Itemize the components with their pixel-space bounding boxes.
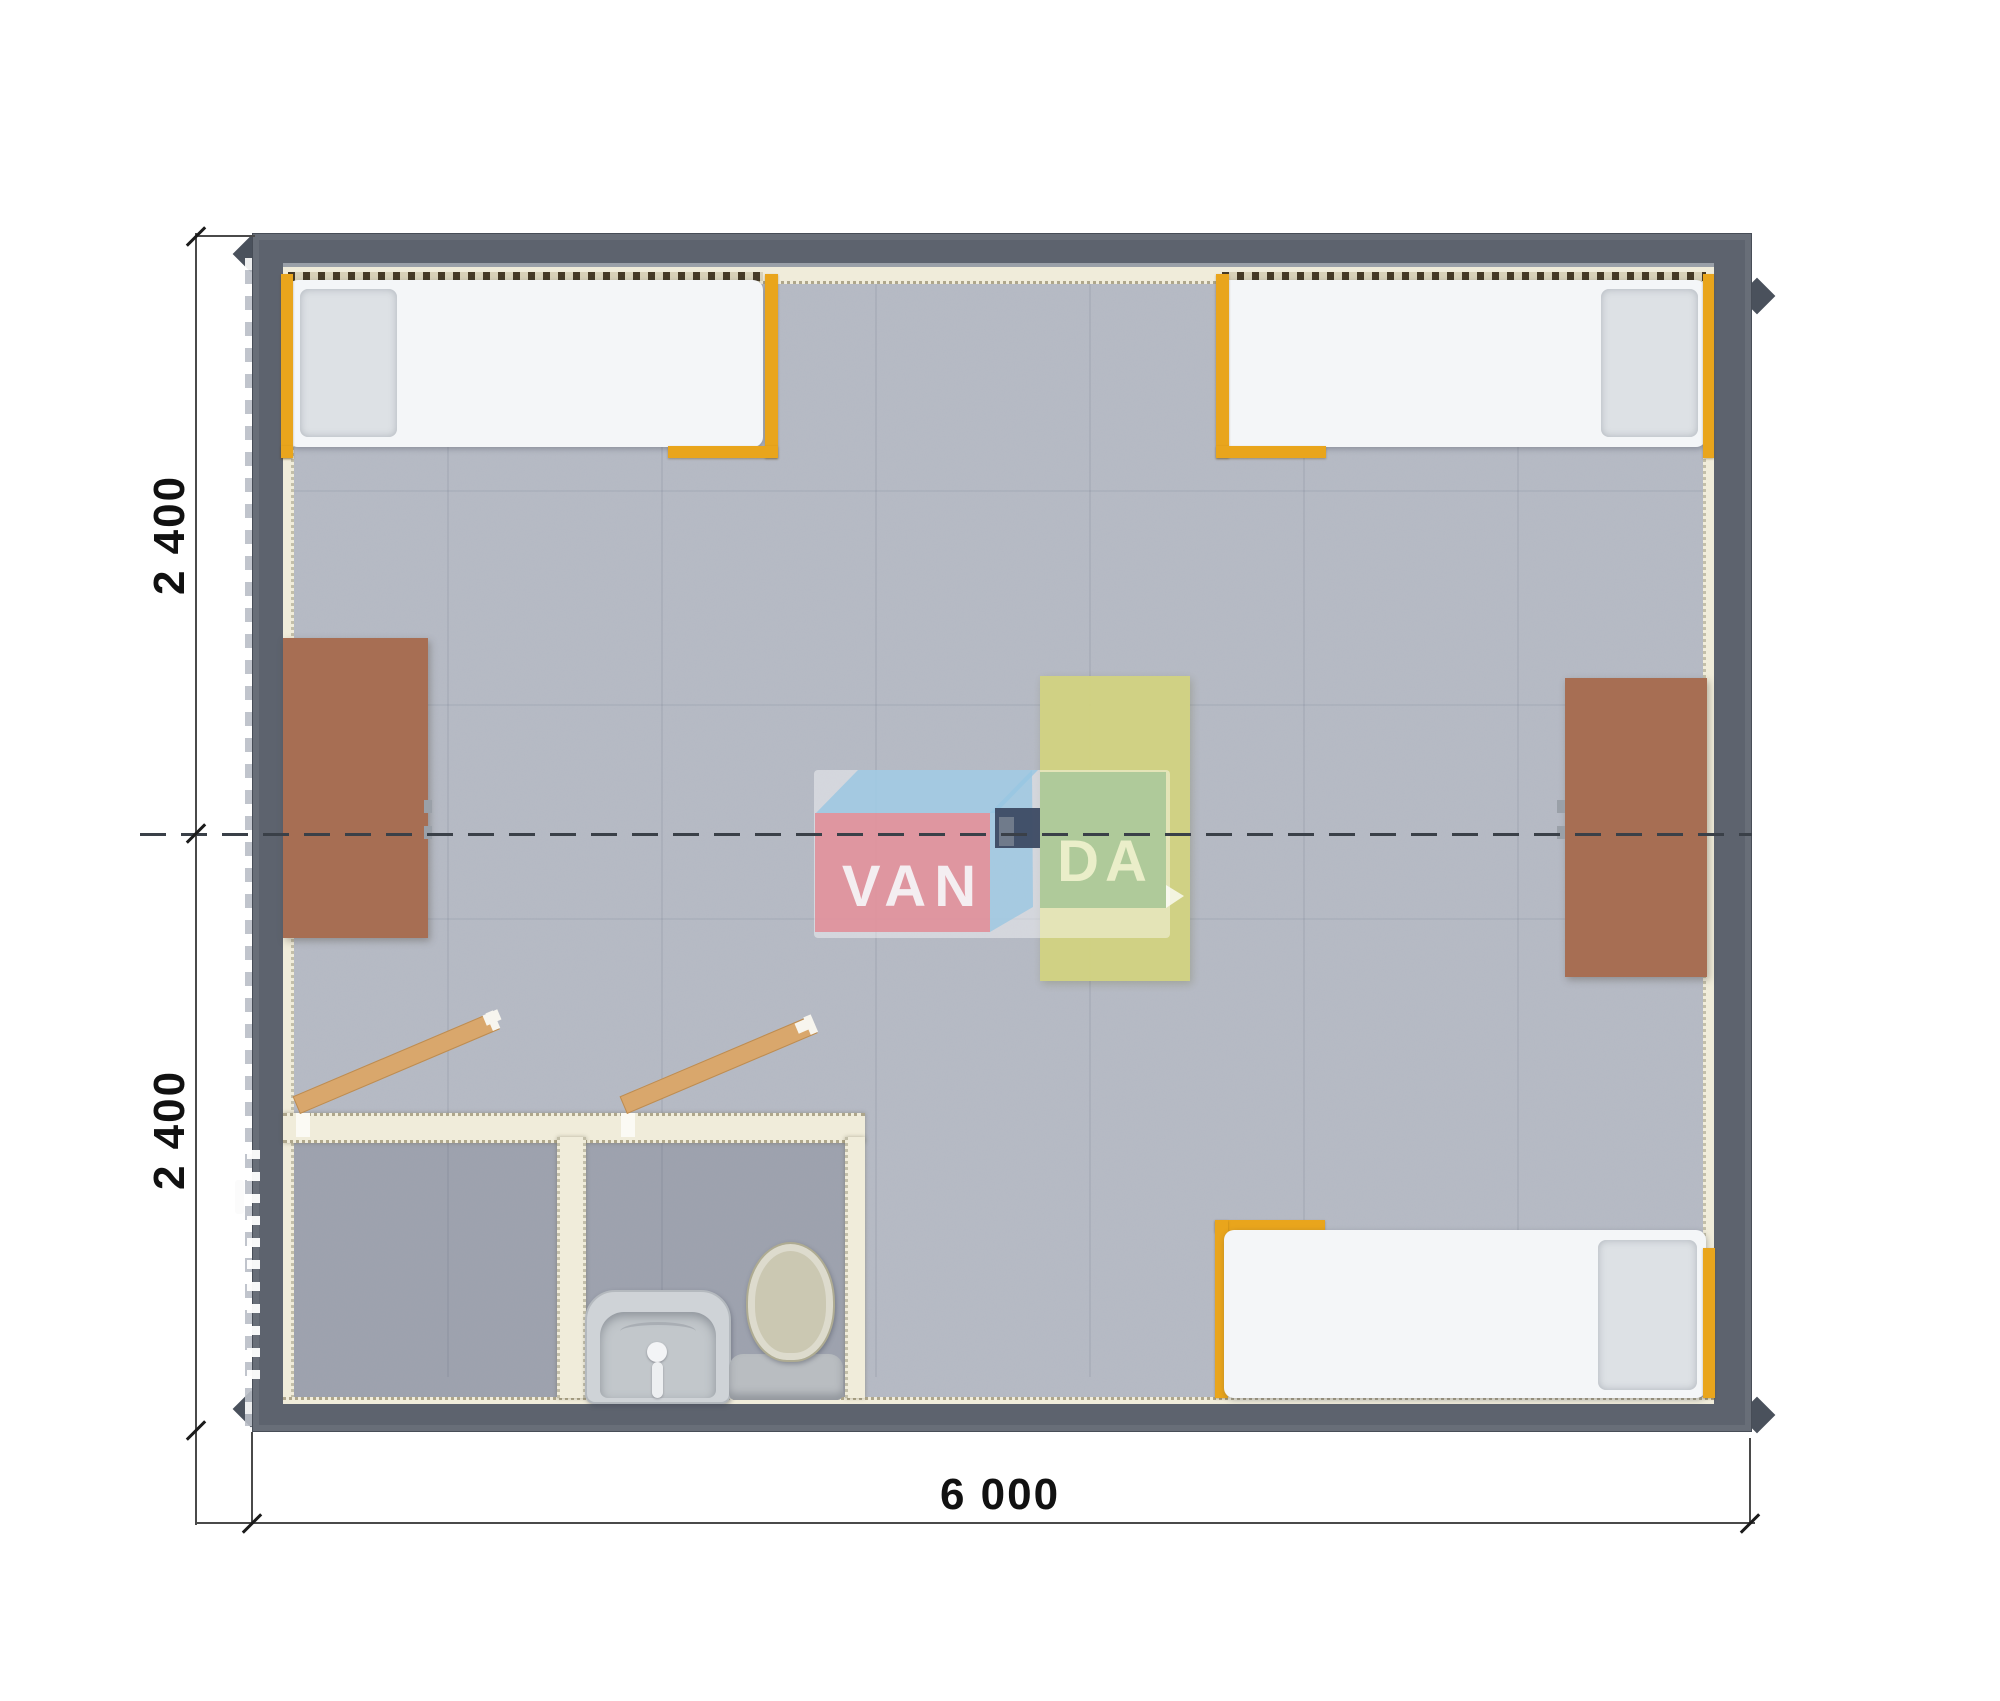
toilet-lid <box>746 1242 835 1362</box>
bed-top-left-frame-rail <box>668 446 778 458</box>
desk-left-wall <box>283 638 428 938</box>
bed-top-left-pillow <box>300 289 397 437</box>
shower-room-floor <box>283 1137 557 1398</box>
bed-top-left-frame-stub <box>281 446 293 458</box>
bathroom-wall-right <box>845 1137 865 1398</box>
dimension-line-horizontal <box>195 1522 1755 1524</box>
desk-right-wall <box>1565 678 1707 977</box>
logo-navy-inner <box>999 817 1014 846</box>
bed-bottom-right-frame-foot <box>1703 1248 1715 1398</box>
bed-top-left-frame-head <box>281 274 293 458</box>
extension-line-top <box>195 235 255 237</box>
door-jamb-left <box>296 1113 310 1137</box>
center-axis-dashed-line <box>140 833 1752 836</box>
vanda-watermark: VAN DA <box>810 765 1200 945</box>
door-jamb-right <box>621 1113 635 1137</box>
desk-right-bracket <box>1557 800 1565 813</box>
dim-label-height-top: 2 400 <box>145 475 195 595</box>
extension-line-bottom-left <box>251 1432 253 1524</box>
bed-top-right-frame-foot <box>1216 274 1229 458</box>
entry-door-handle <box>235 1180 244 1214</box>
floor-seam <box>283 704 1714 706</box>
bed-bottom-right-pillow <box>1598 1240 1697 1390</box>
sink-faucet-icon <box>647 1342 667 1362</box>
logo-text-van: VAN <box>842 854 984 919</box>
extension-line-bottom-right <box>1749 1438 1751 1524</box>
bathroom-wall-divider <box>557 1137 586 1398</box>
logo-white-wedge <box>1166 885 1184 908</box>
logo-text-da: DA <box>1057 829 1153 894</box>
entry-door-dashes <box>247 1150 260 1390</box>
bed-top-right-frame-head <box>1703 274 1714 458</box>
sink-overflow-line <box>620 1322 696 1341</box>
floor-seam <box>283 490 1714 492</box>
dim-label-height-bottom: 2 400 <box>145 1070 195 1190</box>
bed-top-right-pillow <box>1601 289 1698 437</box>
sink-faucet-stem <box>652 1362 663 1398</box>
wall-liner-bottom <box>283 1397 1714 1404</box>
dimension-line-vertical <box>195 233 197 1525</box>
dim-label-width: 6 000 <box>940 1470 1060 1520</box>
desk-left-bracket <box>424 800 432 813</box>
bed-top-right-frame-rail <box>1216 446 1326 458</box>
floor-plan: VAN DA 2 400 2 400 6 000 <box>0 0 2000 1701</box>
bathroom-sink <box>585 1290 731 1404</box>
bed-top-left-frame-foot <box>765 274 778 458</box>
